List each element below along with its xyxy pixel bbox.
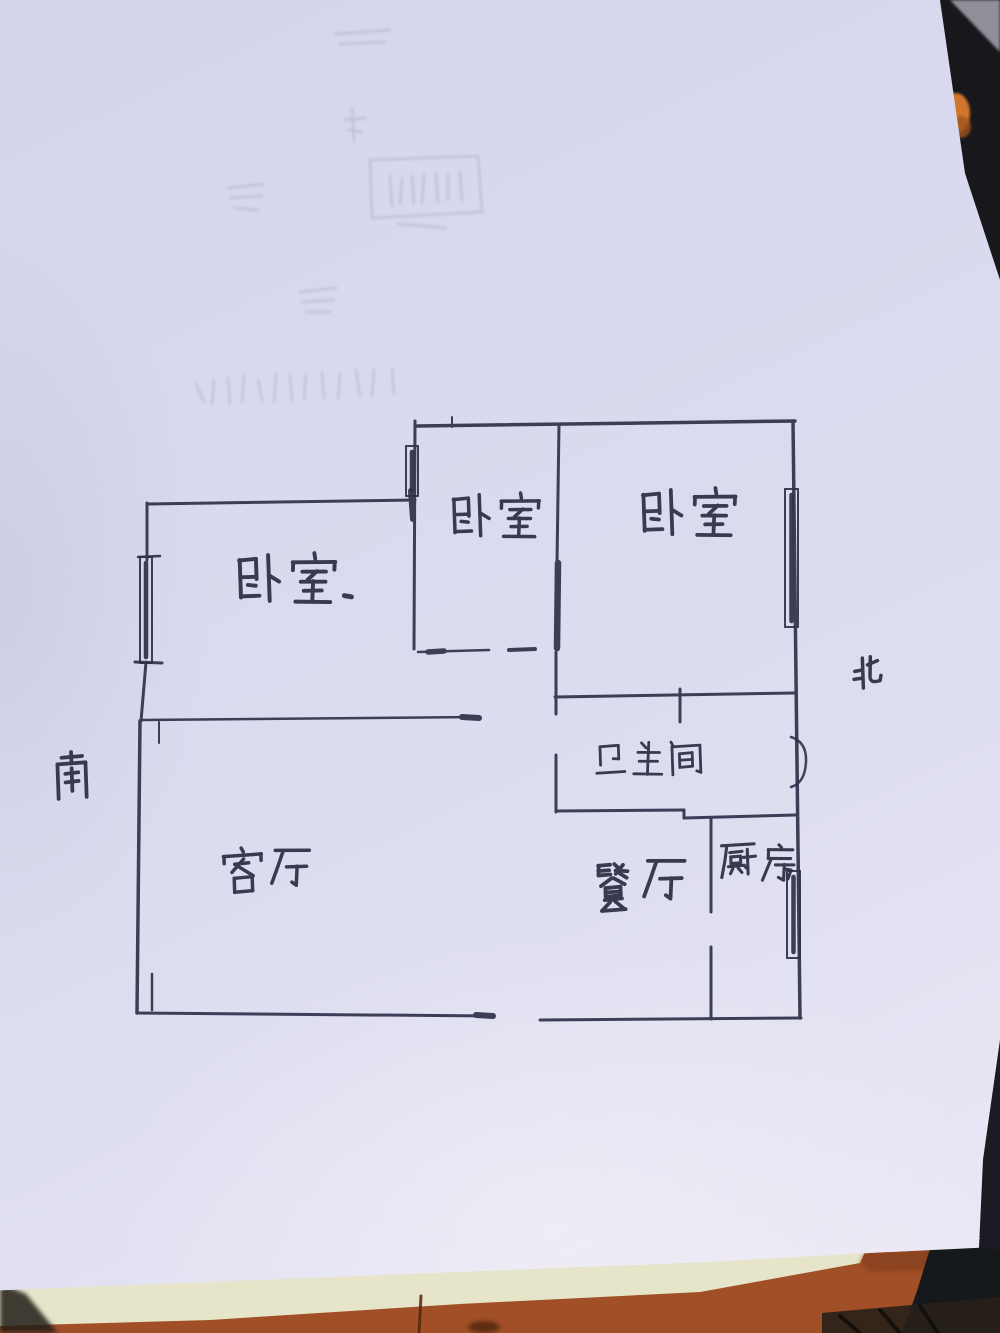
character-stroke [292,866,297,885]
character-stroke [248,585,256,586]
bleedthrough-stroke [336,30,390,44]
compass-label-north [853,656,881,688]
character-stroke [645,529,663,530]
character-stroke [614,878,625,885]
character-stroke [66,781,79,783]
character-stroke [644,511,660,512]
handwritten-character [853,656,881,688]
character-stroke [697,534,730,537]
character-stroke [606,895,621,897]
handwritten-character [721,844,756,878]
character-stroke [671,490,673,534]
character-stroke [672,745,700,747]
wall-line [141,662,146,721]
floor-plan-drawing [0,0,1000,1333]
character-stroke [644,861,656,897]
character-stroke [638,752,660,754]
handwritten-character [57,752,87,799]
character-stroke [634,773,662,775]
room-bedroom-middle [415,423,558,652]
wall-line [148,500,415,504]
character-stroke [616,870,628,871]
character-stroke [614,901,623,909]
handwritten-character [500,492,540,538]
room-label-bathroom [596,741,701,775]
character-stroke [743,856,755,857]
handwritten-character [644,859,685,899]
character-stroke [504,535,535,537]
handwritten-character [634,742,663,775]
character-stroke [762,858,771,880]
bleedthrough-marks [196,30,482,404]
character-stroke [697,771,701,773]
character-stroke [235,891,253,893]
character-stroke [601,878,612,886]
handwritten-character [223,847,263,892]
character-stroke [641,743,646,748]
handwritten-character [693,487,736,536]
bleedthrough-stroke [398,224,446,228]
character-stroke [85,762,86,797]
character-stroke [728,865,743,866]
character-stroke [768,849,793,851]
character-stroke [744,865,746,868]
character-stroke [855,670,862,671]
wall-line [556,810,684,811]
character-stroke [600,747,601,765]
photo-of-floor-plan [0,0,1000,1333]
compass-label-south [57,752,87,799]
bleedthrough-stroke [390,172,462,206]
character-stroke [779,845,782,848]
character-stroke [234,877,252,879]
character-stroke [613,758,619,759]
character-stroke [648,859,685,862]
character-stroke [598,875,610,876]
room-label-bedroom-right [643,487,736,536]
character-stroke [295,601,330,604]
character-stroke [705,523,722,525]
character-stroke [461,521,468,522]
wall-line [137,721,140,1013]
wall-line [684,815,795,818]
character-stroke [666,878,672,899]
character-stroke [272,850,283,883]
wall-line [417,421,795,426]
wall-line [555,693,794,697]
character-stroke [715,488,716,493]
wall-line [137,1013,492,1016]
room-label-dining-room [598,859,684,911]
character-stroke [730,868,733,873]
handwritten-character [762,844,794,881]
paper-sheet [0,0,1000,1333]
character-stroke [479,495,480,536]
character-stroke [241,596,259,597]
character-stroke [854,678,862,679]
wall-line [428,651,444,652]
bleedthrough-stroke [300,288,336,312]
room-bedroom-left [148,502,415,722]
character-stroke [671,742,673,745]
character-stroke [501,499,539,503]
wood-knot [468,1321,500,1333]
character-stroke [235,863,249,864]
character-stroke [241,848,243,852]
character-stroke [520,493,521,498]
wood-crack [419,1296,421,1333]
room-label-kitchen [721,844,795,882]
character-stroke [639,760,657,762]
wall-line [509,649,535,650]
character-stroke [602,909,626,911]
character-stroke [240,577,256,578]
character-stroke [61,756,82,758]
wall-line [557,424,559,563]
room-bedroom-right [558,423,795,697]
handwritten-character [453,494,489,536]
handwritten-character [598,864,629,911]
character-stroke [223,854,261,857]
character-stroke [680,766,693,767]
character-stroke [606,891,621,892]
character-stroke [238,866,253,877]
character-stroke [747,849,748,874]
window-bedroom-left [140,557,152,663]
character-stroke [620,873,627,878]
character-stroke [738,868,742,873]
room-label-living-room [223,847,309,892]
wall-line [557,563,558,648]
handwritten-character [272,849,310,886]
character-stroke [293,560,336,564]
character-stroke [72,768,73,791]
room-living-room [140,722,480,1013]
label-trailing-dot [344,596,351,597]
character-stroke [651,518,659,519]
character-stroke [730,851,742,852]
character-stroke [721,846,728,878]
handwritten-character [671,741,701,775]
character-stroke [605,887,620,889]
wall-line [141,717,478,720]
character-stroke [57,762,85,764]
room-label-bedroom-middle [453,492,539,538]
character-stroke [672,748,673,775]
handwritten-character [643,490,682,536]
character-stroke [600,745,618,746]
character-stroke [57,764,58,799]
bleedthrough-stroke [344,108,366,142]
character-stroke [597,771,625,773]
wall-line [540,1018,801,1020]
character-stroke [778,864,784,880]
character-stroke [455,531,471,532]
bleedthrough-stroke [370,156,482,218]
character-stroke [304,590,322,592]
character-stroke [647,742,648,774]
room-dining-room [480,697,711,1018]
wall-line [462,717,479,718]
character-stroke [695,495,736,499]
character-stroke [700,745,701,772]
character-stroke [511,526,527,528]
handwritten-character [291,552,336,603]
handwritten-character [239,555,280,602]
character-stroke [679,753,692,754]
character-stroke [454,514,468,515]
handwritten-character [596,745,625,773]
bleedthrough-stroke [228,184,264,210]
character-stroke [314,553,315,559]
character-stroke [268,555,270,601]
bleedthrough-stroke [196,368,394,404]
character-stroke [862,658,863,688]
character-stroke [598,870,609,871]
character-stroke [680,759,693,760]
character-stroke [275,849,309,852]
room-label-bedroom-left [239,552,336,603]
wall-line [476,1015,493,1016]
